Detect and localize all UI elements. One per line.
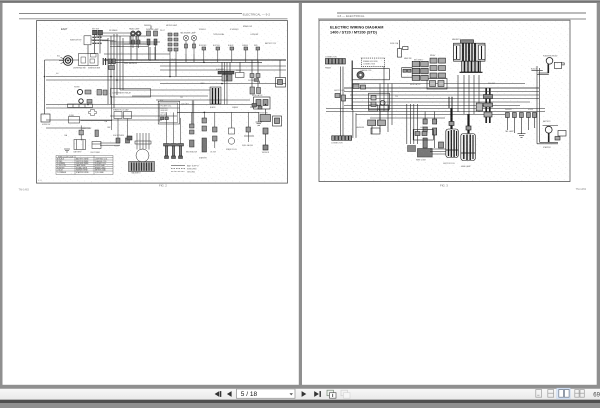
svg-text:5 / 18: 5 / 18	[241, 391, 258, 398]
svg-text:69: 69	[593, 392, 600, 398]
